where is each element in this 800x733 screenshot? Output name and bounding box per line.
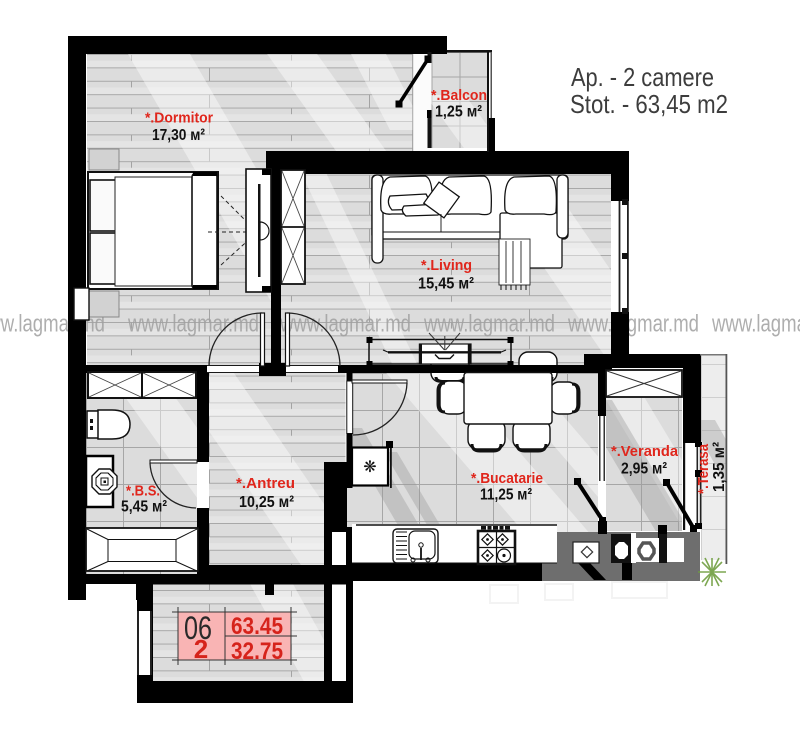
svg-text:11,25 м²: 11,25 м² [480, 487, 532, 504]
svg-text:www.lagmar.md: www.lagmar.md [711, 311, 800, 338]
svg-text:2: 2 [194, 634, 208, 664]
svg-text:15,45 м²: 15,45 м² [418, 276, 474, 293]
svg-text:❋: ❋ [363, 459, 376, 476]
svg-text:*.Terasa: *.Terasa [695, 443, 712, 494]
svg-text:1,25 м²: 1,25 м² [435, 104, 482, 121]
svg-text:2,95 м²: 2,95 м² [621, 461, 667, 478]
svg-text:www.lagmar.md: www.lagmar.md [423, 311, 555, 338]
svg-text:17,30 м²: 17,30 м² [152, 127, 205, 144]
svg-text:*.Bucatarie: *.Bucatarie [471, 470, 543, 487]
svg-text:*.B.S.: *.B.S. [126, 483, 160, 500]
svg-text:*.Balcon: *.Balcon [431, 87, 487, 104]
svg-text:*.Veranda: *.Veranda [611, 443, 679, 460]
svg-text:*.Dormitor: *.Dormitor [145, 110, 213, 127]
svg-text:10,25 м²: 10,25 м² [239, 494, 294, 511]
svg-text:1,35 м²: 1,35 м² [711, 442, 728, 492]
svg-text:*.Living: *.Living [421, 257, 472, 274]
svg-text:www.lagmar.md: www.lagmar.md [567, 311, 699, 338]
svg-text:*.Antreu: *.Antreu [236, 475, 295, 492]
svg-text:5,45 м²: 5,45 м² [121, 499, 167, 516]
svg-text:63.45: 63.45 [231, 613, 283, 640]
svg-text:32.75: 32.75 [231, 638, 283, 665]
svg-text:Ap. - 2 camere: Ap. - 2 camere [571, 62, 714, 92]
svg-text:Stot. - 63,45 m2: Stot. - 63,45 m2 [570, 89, 728, 119]
svg-text:www.lagmar.md: www.lagmar.md [127, 311, 259, 338]
